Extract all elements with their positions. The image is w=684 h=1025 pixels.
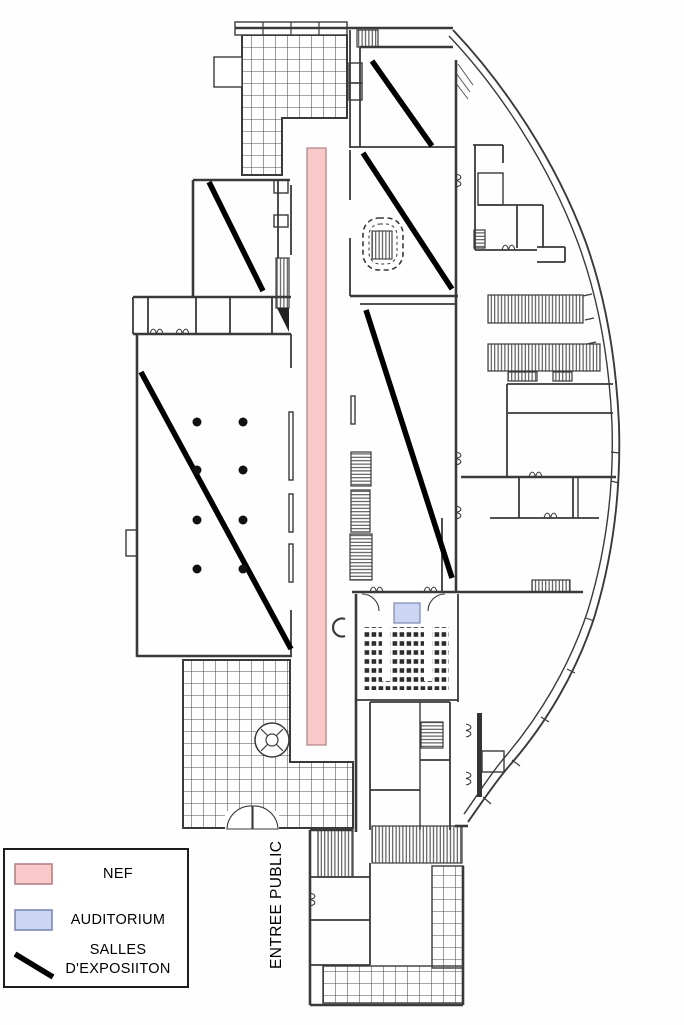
nef-hall xyxy=(307,148,326,745)
auditorium-seats xyxy=(364,627,449,690)
exhibition-line-4 xyxy=(366,310,452,578)
auditorium-area xyxy=(362,594,449,690)
revolving-door xyxy=(333,619,345,637)
legend-label-exhibition-line2: D'EXPOSIITON xyxy=(51,960,185,979)
bottom-terrace xyxy=(183,660,353,830)
exhibition-line-3 xyxy=(209,182,263,291)
floor-plan-page: NEF AUDITORIUM SALLES D'EXPOSIITON ENTRE… xyxy=(0,0,684,1025)
legend: NEF AUDITORIUM SALLES D'EXPOSIITON xyxy=(3,848,189,988)
auditorium xyxy=(394,603,420,623)
legend-label-exhibition-line1: SALLES xyxy=(51,941,185,960)
auditorium-color-swatch xyxy=(14,909,54,932)
exhibition-line-5 xyxy=(141,372,291,649)
terrace-annex xyxy=(214,57,242,87)
legend-label-nef: NEF xyxy=(51,866,185,882)
escalator-oval xyxy=(363,218,403,270)
compass-circle xyxy=(255,723,289,757)
wall-bar xyxy=(477,713,482,797)
legend-label-auditorium: AUDITORIUM xyxy=(51,912,185,928)
nef-color-swatch xyxy=(14,863,54,886)
exhibition-line-1 xyxy=(372,61,432,146)
legend-label-exhibition: SALLES D'EXPOSIITON xyxy=(51,941,185,978)
exhibition-line-2 xyxy=(363,153,452,289)
courtyard-terrace xyxy=(323,866,463,1003)
facade-wedge-hatch xyxy=(455,64,473,99)
stair-triangle xyxy=(277,308,289,332)
public-entrance-label: ENTREE PUBLIC xyxy=(268,845,288,969)
top-terrace xyxy=(214,22,347,175)
exhibition-lines xyxy=(141,61,452,649)
